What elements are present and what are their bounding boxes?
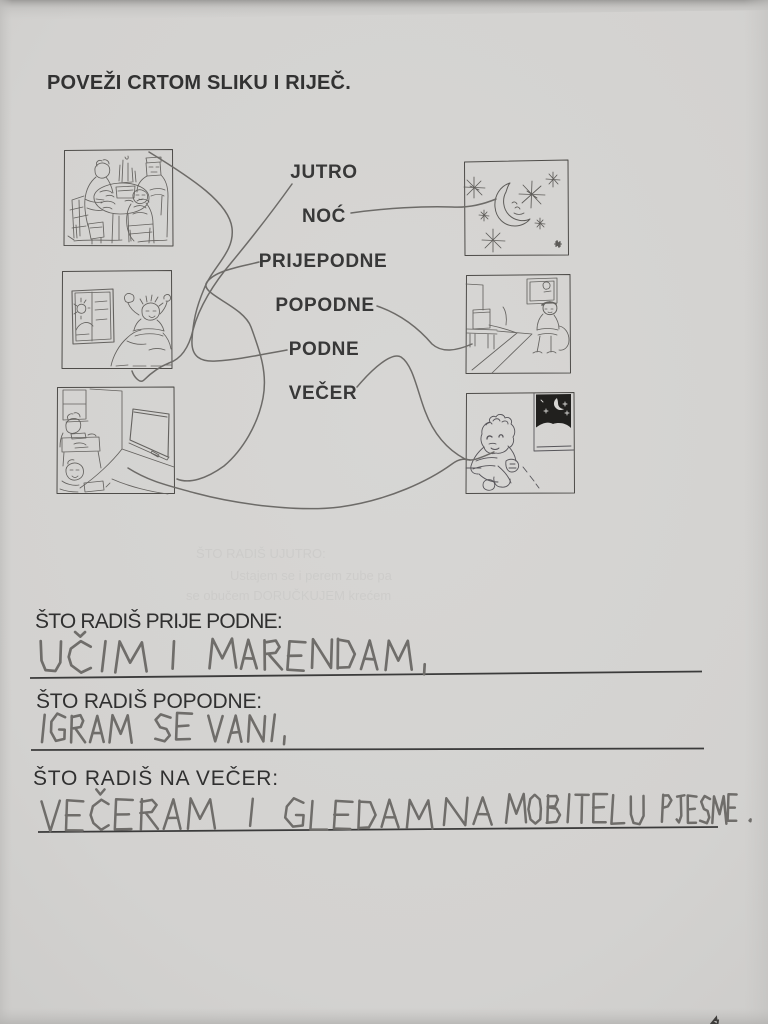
svg-text:ŠTO RADIŠ POPODNE:: ŠTO RADIŠ POPODNE: bbox=[36, 690, 262, 713]
svg-text:ŠTO RADIŠ UJUTRO:: ŠTO RADIŠ UJUTRO: bbox=[196, 546, 326, 561]
svg-text:PODNE: PODNE bbox=[289, 339, 360, 360]
svg-text:ŠTO RADIŠ NA VEČER:: ŠTO RADIŠ NA VEČER: bbox=[33, 767, 279, 790]
svg-text:ŠTO RADIŠ PRIJE PODNE:: ŠTO RADIŠ PRIJE PODNE: bbox=[35, 610, 282, 633]
svg-text:se obučem DORUČKUJEM krećem: se obučem DORUČKUJEM krećem bbox=[186, 588, 391, 603]
svg-text:POVEŽI CRTOM SLIKU I RIJEČ.: POVEŽI CRTOM SLIKU I RIJEČ. bbox=[47, 70, 351, 94]
svg-text:Ustajem se i perem zube pa: Ustajem se i perem zube pa bbox=[230, 568, 393, 583]
svg-text:NOĆ: NOĆ bbox=[302, 205, 346, 227]
svg-text:JUTRO: JUTRO bbox=[290, 162, 357, 183]
svg-text:PRIJEPODNE: PRIJEPODNE bbox=[259, 251, 387, 272]
svg-text:POPODNE: POPODNE bbox=[275, 295, 374, 316]
svg-text:VEČER: VEČER bbox=[289, 382, 357, 404]
